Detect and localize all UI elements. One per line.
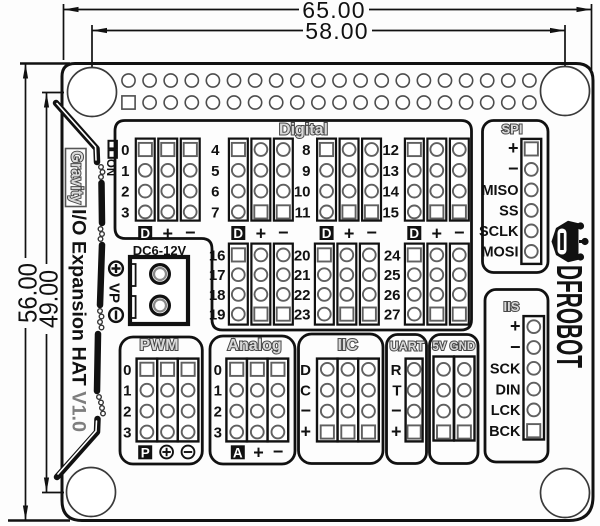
svg-text:−: − [273, 442, 284, 462]
svg-text:11: 11 [295, 204, 311, 221]
svg-text:SS: SS [499, 204, 519, 220]
svg-text:T: T [392, 383, 401, 400]
svg-text:1: 1 [214, 383, 222, 400]
svg-text:7: 7 [211, 204, 219, 221]
svg-text:D: D [140, 226, 150, 241]
svg-text:UART: UART [390, 340, 425, 354]
svg-text:R: R [391, 362, 402, 379]
svg-text:DIN: DIN [496, 382, 521, 398]
svg-text:8: 8 [302, 142, 310, 159]
svg-text:−: − [185, 223, 196, 243]
svg-text:0: 0 [121, 142, 129, 159]
svg-text:Analog: Analog [227, 337, 281, 354]
svg-text:24: 24 [384, 247, 401, 264]
svg-text:13: 13 [382, 163, 399, 180]
svg-text:+: + [508, 138, 519, 158]
svg-text:C: C [300, 383, 311, 400]
svg-text:3: 3 [123, 425, 131, 442]
svg-text:−: − [510, 337, 521, 357]
svg-text:2: 2 [123, 404, 131, 421]
svg-text:14: 14 [382, 184, 399, 201]
svg-text:26: 26 [384, 287, 401, 304]
svg-text:9: 9 [302, 163, 310, 180]
svg-text:−: − [366, 223, 377, 243]
svg-text:16: 16 [209, 247, 226, 264]
svg-text:5V GND: 5V GND [432, 341, 475, 353]
svg-text:0: 0 [123, 362, 131, 379]
svg-text:+: + [163, 224, 174, 244]
svg-text:D: D [233, 226, 243, 241]
svg-text:MOSI: MOSI [481, 245, 518, 261]
svg-text:−: − [508, 159, 519, 179]
svg-text:DFROBOT: DFROBOT [549, 265, 590, 368]
svg-text:D: D [322, 226, 332, 241]
svg-text:3: 3 [214, 425, 222, 442]
svg-text:6: 6 [211, 184, 219, 201]
svg-text:I/O Expansion HAT V1.0: I/O Expansion HAT V1.0 [68, 209, 89, 432]
svg-text:19: 19 [209, 307, 226, 324]
svg-text:18: 18 [209, 287, 226, 304]
svg-text:2: 2 [214, 404, 222, 421]
svg-text:10: 10 [294, 184, 311, 201]
svg-text:−: − [300, 401, 311, 421]
svg-text:23: 23 [294, 307, 311, 324]
svg-text:−: − [454, 223, 465, 243]
svg-text:58.00: 58.00 [305, 18, 369, 44]
svg-text:1: 1 [121, 163, 129, 180]
svg-text:1: 1 [123, 383, 131, 400]
svg-text:SCLK: SCLK [479, 224, 519, 240]
svg-text:−: − [391, 401, 402, 421]
svg-text:27: 27 [384, 307, 401, 324]
svg-text:+: + [344, 224, 355, 244]
svg-text:LCK: LCK [491, 403, 521, 419]
svg-text:+: + [300, 422, 311, 442]
svg-text:+: + [510, 316, 521, 336]
svg-text:21: 21 [294, 267, 311, 284]
svg-text:IIC: IIC [337, 337, 358, 354]
svg-text:4: 4 [211, 142, 220, 159]
svg-text:+: + [432, 224, 443, 244]
svg-text:49.00: 49.00 [34, 270, 64, 328]
svg-text:3: 3 [121, 204, 129, 221]
svg-text:D: D [300, 362, 311, 379]
svg-text:12: 12 [382, 142, 399, 159]
svg-text:25: 25 [384, 267, 401, 284]
svg-text:SPI: SPI [502, 122, 523, 137]
svg-text:SCK: SCK [490, 362, 521, 378]
svg-text:5: 5 [211, 163, 219, 180]
svg-text:MISO: MISO [481, 183, 518, 199]
svg-text:BCK: BCK [489, 424, 521, 440]
svg-text:17: 17 [209, 267, 226, 284]
svg-text:Digital: Digital [279, 122, 328, 139]
svg-text:+: + [256, 224, 267, 244]
svg-text:20: 20 [294, 247, 311, 264]
svg-text:A: A [233, 445, 243, 460]
svg-text:15: 15 [382, 204, 399, 221]
svg-text:2: 2 [121, 184, 129, 201]
svg-text:+: + [253, 443, 264, 463]
svg-text:PWM: PWM [139, 337, 178, 354]
svg-text:VP: VP [106, 283, 123, 303]
svg-text:22: 22 [294, 287, 311, 304]
svg-text:−: − [278, 223, 289, 243]
svg-text:IIS: IIS [504, 299, 520, 314]
svg-text:0: 0 [214, 362, 222, 379]
svg-text:+: + [391, 422, 402, 442]
svg-text:D: D [409, 226, 419, 241]
svg-text:Gravity: Gravity [68, 151, 87, 204]
svg-text:P: P [141, 445, 150, 460]
